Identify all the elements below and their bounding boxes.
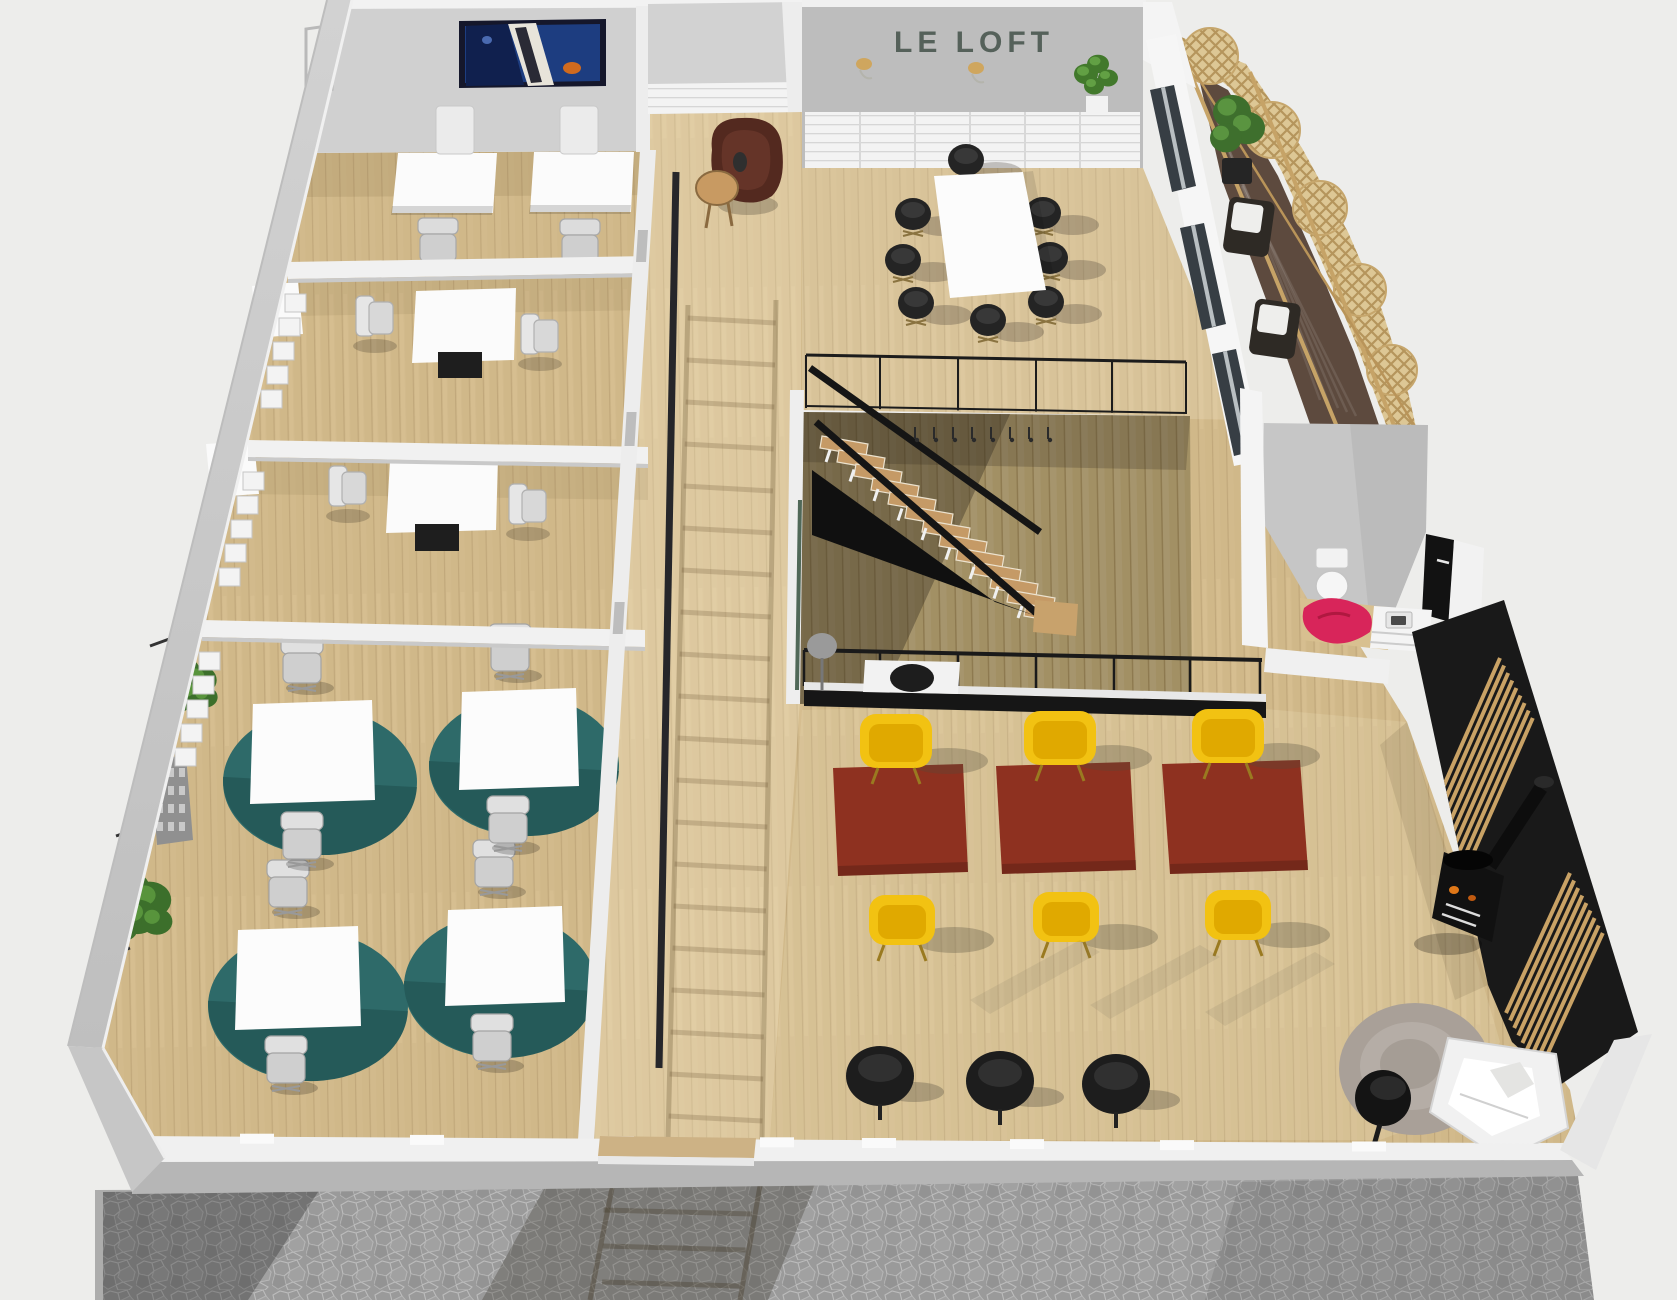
svg-text:LE LOFT: LE LOFT bbox=[894, 26, 1054, 59]
